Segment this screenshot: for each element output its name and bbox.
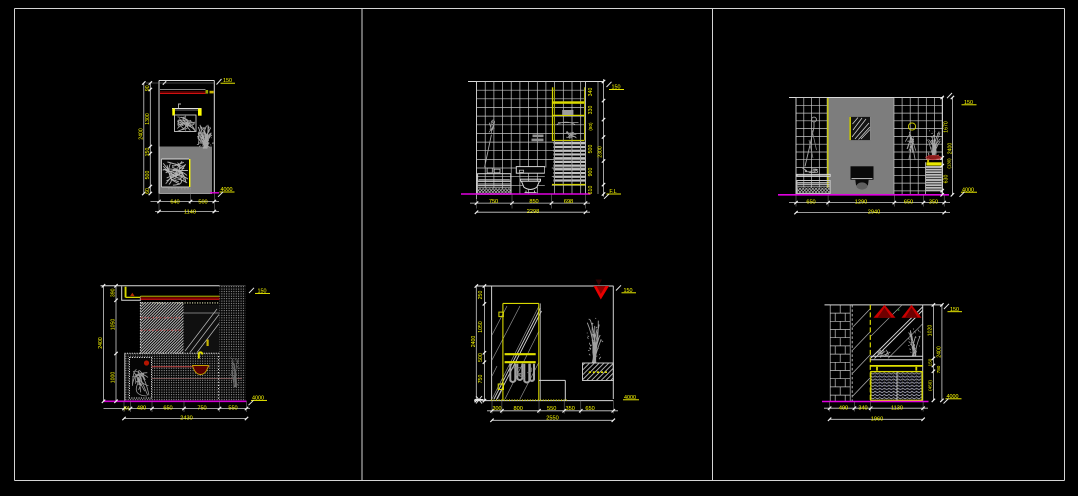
svg-text:(450): (450) (928, 380, 933, 391)
svg-text:750: 750 (489, 199, 498, 205)
svg-text:2400: 2400 (937, 346, 943, 358)
svg-text:550: 550 (228, 406, 237, 412)
svg-text:750: 750 (478, 375, 484, 384)
svg-text:1670: 1670 (944, 121, 950, 133)
svg-text:650: 650 (806, 199, 815, 205)
svg-text:390: 390 (111, 288, 117, 297)
svg-text:2400: 2400 (947, 143, 953, 155)
svg-text:(130): (130) (947, 158, 952, 169)
svg-text:1300: 1300 (145, 113, 151, 125)
svg-text:500: 500 (198, 200, 207, 206)
svg-text:2550: 2550 (546, 415, 558, 421)
svg-text:2298: 2298 (527, 209, 539, 215)
svg-text:1050: 1050 (478, 321, 484, 333)
svg-text:2400: 2400 (139, 128, 145, 140)
svg-text:1290: 1290 (855, 199, 867, 205)
svg-text:850: 850 (529, 199, 538, 205)
svg-text:2300: 2300 (598, 146, 604, 158)
svg-text:480: 480 (137, 406, 146, 412)
svg-text:1960: 1960 (871, 417, 883, 423)
svg-text:150: 150 (145, 148, 151, 157)
svg-text:500: 500 (145, 171, 151, 180)
svg-text:300: 300 (493, 406, 502, 412)
svg-text:490: 490 (839, 406, 848, 412)
svg-text:500: 500 (478, 353, 484, 362)
svg-text:340: 340 (588, 88, 594, 97)
svg-text:1140: 1140 (184, 210, 196, 216)
svg-text:650: 650 (163, 406, 172, 412)
svg-text:(80): (80) (588, 122, 593, 131)
svg-text:650: 650 (585, 406, 594, 412)
svg-text:2400: 2400 (98, 337, 104, 349)
svg-text:1000: 1000 (111, 372, 117, 384)
svg-text:250: 250 (478, 291, 484, 300)
svg-text:350: 350 (929, 199, 938, 205)
svg-text:1130: 1130 (891, 406, 903, 412)
svg-text:350: 350 (566, 406, 575, 412)
svg-text:698: 698 (564, 199, 573, 205)
svg-text:550: 550 (547, 406, 556, 412)
svg-text:150: 150 (928, 358, 933, 366)
svg-text:330: 330 (588, 106, 594, 115)
svg-text:2400: 2400 (471, 336, 477, 348)
svg-text:500: 500 (588, 145, 594, 154)
svg-text:640: 640 (170, 200, 179, 206)
svg-text:150: 150 (223, 78, 232, 84)
svg-text:630: 630 (944, 175, 950, 184)
svg-text:650: 650 (904, 199, 913, 205)
svg-text:2430: 2430 (180, 416, 192, 422)
svg-text:60: 60 (145, 188, 151, 194)
svg-text:90: 90 (145, 85, 151, 91)
svg-text:2940: 2940 (868, 209, 880, 215)
svg-text:340: 340 (858, 406, 867, 412)
svg-text:1020: 1020 (928, 325, 934, 337)
svg-text:800: 800 (514, 406, 523, 412)
svg-text:(0): (0) (124, 406, 130, 412)
svg-text:750: 750 (197, 406, 206, 412)
svg-text:780: 780 (936, 365, 941, 373)
svg-text:900: 900 (588, 168, 594, 177)
svg-text:610: 610 (588, 186, 594, 195)
svg-text:1050: 1050 (111, 319, 117, 331)
